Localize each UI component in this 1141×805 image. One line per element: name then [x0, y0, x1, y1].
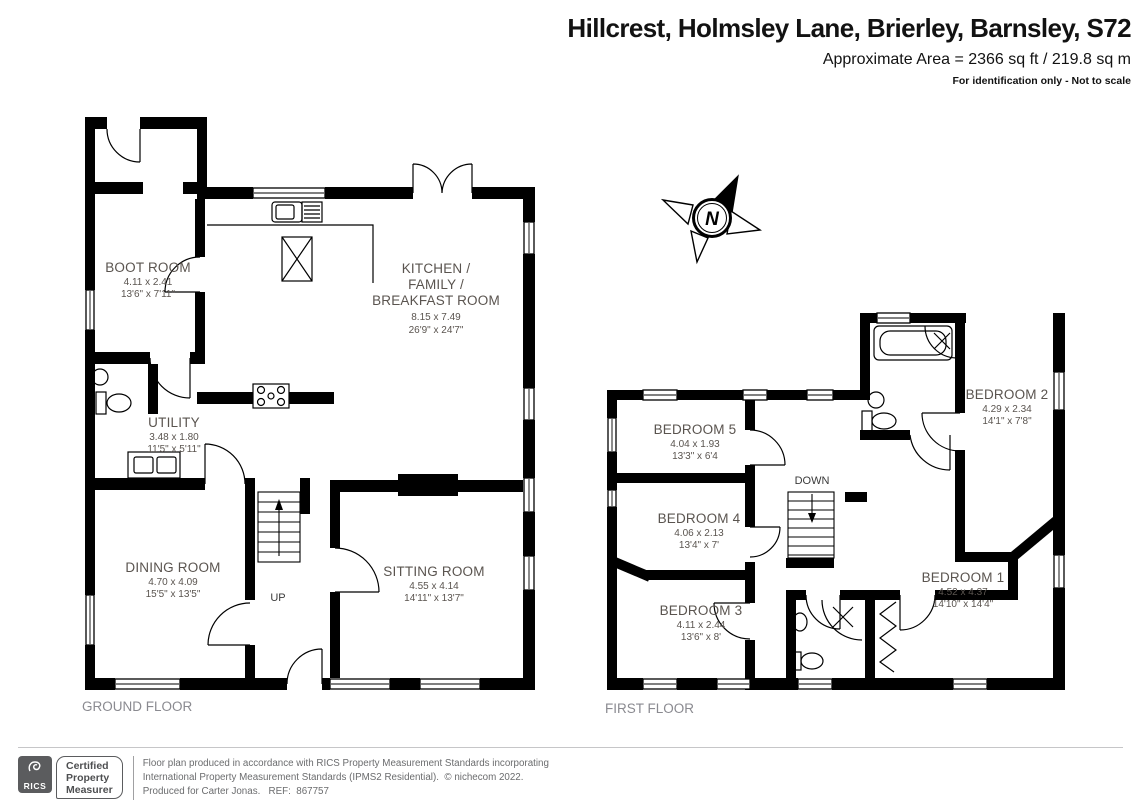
window [608, 418, 616, 452]
ground-floor-fixtures [92, 202, 373, 478]
window [743, 390, 767, 400]
svg-text:4.55 x 4.14: 4.55 x 4.14 [409, 581, 459, 592]
svg-text:13'3" x 6'4: 13'3" x 6'4 [672, 451, 718, 462]
room-label-bedroom4: BEDROOM 4 [658, 511, 741, 526]
first-floor-windows [608, 313, 1064, 689]
footer: RICS Certified Property Measurer Floor p… [18, 747, 1123, 800]
svg-text:13'6" x 8': 13'6" x 8' [681, 632, 721, 643]
first-floor-doors [714, 413, 960, 672]
window [524, 222, 534, 254]
utility-sink [128, 452, 180, 478]
draining-board [302, 202, 322, 222]
hall-rear-door [287, 649, 322, 684]
disclaimer-line-1: Floor plan produced in accordance with R… [143, 757, 549, 771]
french-doors [413, 164, 472, 193]
window [1054, 372, 1064, 410]
window [717, 679, 750, 689]
svg-text:13'6" x 7'11": 13'6" x 7'11" [121, 289, 176, 300]
svg-text:4.06 x 2.13: 4.06 x 2.13 [674, 528, 724, 539]
bathroom-toilet [862, 411, 896, 431]
window [330, 679, 390, 689]
window [877, 313, 910, 323]
rics-logo: RICS [18, 756, 52, 793]
window [86, 595, 94, 645]
svg-text:11'5" x 5'11": 11'5" x 5'11" [147, 444, 201, 455]
compass-north-letter: N [705, 209, 720, 230]
kitchen-counter [207, 225, 373, 283]
first-floor-stairs [788, 492, 834, 558]
bedroom1-door [900, 595, 935, 630]
corner-shower [822, 600, 862, 640]
room-label-dining-room: DINING ROOM [125, 560, 220, 575]
ground-floor-stairs [258, 492, 300, 562]
dining-door [208, 603, 250, 645]
window [524, 478, 534, 512]
bedroom2-door [922, 413, 960, 451]
shower-room-door [806, 595, 840, 629]
window [524, 388, 534, 420]
bedroom5-door [750, 430, 785, 465]
svg-text:4.11 x 2.41: 4.11 x 2.41 [124, 277, 173, 288]
window [115, 679, 180, 689]
floorplan-page: Hillcrest, Holmsley Lane, Brierley, Barn… [0, 0, 1141, 805]
window [643, 390, 677, 400]
svg-text:8.15 x 7.49: 8.15 x 7.49 [411, 312, 461, 323]
svg-text:26'9" x 24'7": 26'9" x 24'7" [409, 325, 464, 336]
bathroom-door [910, 435, 950, 470]
bathroom-basin [868, 392, 884, 408]
ground-floor-walls [85, 117, 535, 690]
svg-text:FAMILY /: FAMILY / [408, 277, 464, 292]
room-label-boot-room: BOOT ROOM [105, 260, 191, 275]
window [86, 290, 94, 330]
svg-text:4.29 x 2.34: 4.29 x 2.34 [982, 404, 1032, 415]
certified-measurer-badge: Certified Property Measurer [56, 756, 123, 799]
footer-disclaimer: Floor plan produced in accordance with R… [143, 756, 549, 799]
window [420, 679, 480, 689]
window [643, 679, 677, 689]
first-floor-walls [607, 313, 1065, 690]
floor-plan-svg: BOOT ROOM 4.11 x 2.41 13'6" x 7'11" KITC… [0, 0, 1141, 805]
room-label-bedroom2: BEDROOM 2 [966, 387, 1049, 402]
bedroom4-door [750, 527, 780, 557]
rics-lion-icon [26, 759, 44, 775]
window [953, 679, 987, 689]
svg-text:4.52 x 4.37: 4.52 x 4.37 [938, 587, 988, 598]
utility-door [205, 444, 245, 484]
down-label: DOWN [795, 475, 830, 487]
first-floor-plan: BEDROOM 5 4.04 x 1.93 13'3" x 6'4 BEDROO… [605, 313, 1065, 716]
hob [253, 384, 289, 408]
window [524, 556, 534, 590]
svg-text:3.48 x 1.80: 3.48 x 1.80 [149, 432, 199, 443]
toilet [96, 392, 106, 414]
shower-room-toilet [792, 652, 823, 670]
sitting-door [335, 548, 379, 592]
wc-fixtures [92, 369, 131, 414]
window [807, 390, 833, 400]
first-floor-labels: BEDROOM 5 4.04 x 1.93 13'3" x 6'4 BEDROO… [605, 387, 1048, 716]
footer-divider [133, 756, 134, 800]
room-label-bedroom1: BEDROOM 1 [922, 570, 1005, 585]
ground-floor-plan: BOOT ROOM 4.11 x 2.41 13'6" x 7'11" KITC… [82, 117, 535, 714]
svg-text:13'4" x 7': 13'4" x 7' [679, 540, 719, 551]
svg-text:14'10" x 14'4": 14'10" x 14'4" [933, 599, 994, 610]
room-label-bedroom5: BEDROOM 5 [654, 422, 737, 437]
first-floor-label: FIRST FLOOR [605, 701, 694, 716]
bedroom1-zigzag-wall [880, 602, 896, 672]
svg-text:15'5" x 13'5": 15'5" x 13'5" [146, 589, 201, 600]
compass-icon: N [663, 176, 760, 262]
window [608, 490, 616, 507]
room-label-bedroom3: BEDROOM 3 [660, 603, 743, 618]
window [1054, 555, 1064, 588]
rics-logo-text: RICS [24, 781, 47, 791]
up-label: UP [270, 592, 285, 604]
svg-text:14'11" x 13'7": 14'11" x 13'7" [404, 593, 464, 604]
ground-floor-label: GROUND FLOOR [82, 699, 193, 714]
room-label-sitting-room: SITTING ROOM [383, 564, 484, 579]
disclaimer-line-3: Produced for Carter Jonas. REF: 867757 [143, 785, 549, 799]
entry-door [107, 129, 140, 162]
svg-text:14'1" x 7'8": 14'1" x 7'8" [982, 416, 1032, 427]
kitchen-island [282, 237, 312, 281]
disclaimer-line-2: International Property Measurement Stand… [143, 771, 549, 785]
svg-text:4.11 x 2.44: 4.11 x 2.44 [677, 620, 726, 631]
room-label-kitchen: KITCHEN / [402, 261, 471, 276]
window [798, 679, 832, 689]
svg-text:4.70 x 4.09: 4.70 x 4.09 [148, 577, 198, 588]
room-label-utility: UTILITY [148, 415, 200, 430]
window [253, 188, 325, 198]
svg-text:BREAKFAST ROOM: BREAKFAST ROOM [372, 293, 500, 308]
svg-text:4.04 x 1.93: 4.04 x 1.93 [670, 439, 720, 450]
